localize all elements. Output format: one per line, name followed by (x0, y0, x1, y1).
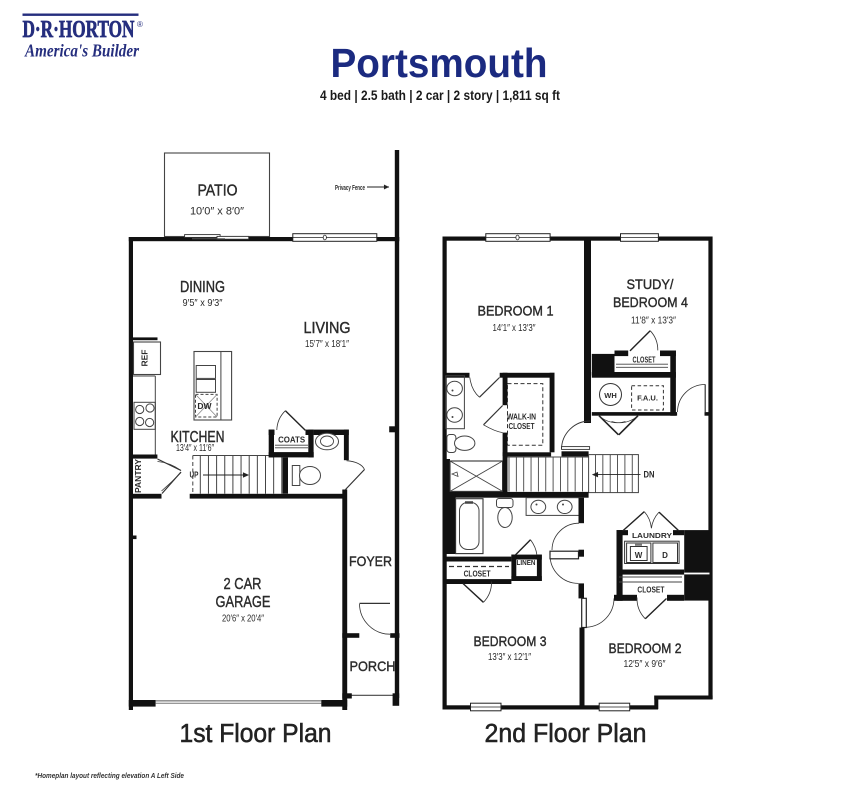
svg-text:LINEN: LINEN (517, 558, 536, 567)
svg-text:LIVING: LIVING (304, 320, 351, 337)
svg-text:2 CAR: 2 CAR (224, 576, 262, 593)
svg-text:*Homeplan layout reflecting el: *Homeplan layout reflecting elevation A … (35, 771, 184, 780)
svg-text:STUDY/: STUDY/ (627, 276, 674, 292)
svg-text:20′6″ x 20′4″: 20′6″ x 20′4″ (222, 614, 264, 625)
svg-text:America's Builder: America's Builder (24, 41, 140, 61)
svg-text:LAUNDRY: LAUNDRY (632, 531, 672, 540)
svg-text:11′8″ x 13′3″: 11′8″ x 13′3″ (631, 315, 676, 327)
svg-text:15′7″ x 18′1″: 15′7″ x 18′1″ (305, 338, 349, 350)
svg-text:GARAGE: GARAGE (216, 594, 271, 611)
svg-text:Portsmouth: Portsmouth (331, 40, 548, 86)
svg-text:W: W (635, 551, 643, 560)
svg-text:2nd Floor Plan: 2nd Floor Plan (485, 720, 647, 748)
svg-text:1st Floor Plan: 1st Floor Plan (180, 720, 332, 748)
svg-text:®: ® (137, 20, 143, 29)
svg-text:BEDROOM 3: BEDROOM 3 (474, 633, 547, 649)
svg-text:WH: WH (604, 391, 617, 400)
svg-text:Privacy Fence: Privacy Fence (335, 185, 365, 192)
svg-text:D·R·HORTON: D·R·HORTON (23, 17, 135, 43)
svg-text:PANTRY: PANTRY (133, 459, 143, 493)
svg-text:CLOSET: CLOSET (637, 585, 665, 595)
svg-text:CLOSET: CLOSET (509, 421, 536, 431)
svg-text:13′3″ x 12′1″: 13′3″ x 12′1″ (488, 651, 531, 663)
svg-text:10′0″ x 8′0″: 10′0″ x 8′0″ (190, 206, 244, 218)
svg-text:DINING: DINING (180, 279, 225, 296)
svg-text:14′1″ x 13′3″: 14′1″ x 13′3″ (493, 322, 536, 334)
svg-text:9′5″ x 9′3″: 9′5″ x 9′3″ (183, 297, 223, 309)
svg-text:D: D (662, 551, 668, 560)
svg-text:13′4″ x 11′6″: 13′4″ x 11′6″ (176, 443, 214, 454)
svg-text:PATIO: PATIO (198, 183, 238, 200)
svg-text:4 bed | 2.5 bath | 2 car |: 4 bed | 2.5 bath | 2 car | 2 story | 1,8… (320, 88, 560, 103)
svg-text:PORCH: PORCH (350, 658, 396, 674)
svg-text:FOYER: FOYER (349, 553, 392, 569)
svg-text:DW: DW (197, 401, 212, 411)
svg-text:COATS: COATS (278, 435, 305, 445)
svg-text:REF: REF (140, 350, 150, 367)
svg-text:CLOSET: CLOSET (633, 354, 657, 364)
svg-text:BEDROOM 1: BEDROOM 1 (478, 303, 554, 319)
svg-text:UP: UP (190, 470, 199, 480)
svg-text:DN: DN (644, 469, 655, 479)
svg-text:CLOSET: CLOSET (464, 569, 492, 579)
svg-text:F.A.U.: F.A.U. (637, 394, 658, 403)
svg-text:BEDROOM 2: BEDROOM 2 (609, 640, 682, 656)
svg-text:BEDROOM 4: BEDROOM 4 (613, 294, 688, 310)
svg-text:12′5″ x 9′6″: 12′5″ x 9′6″ (624, 658, 666, 670)
